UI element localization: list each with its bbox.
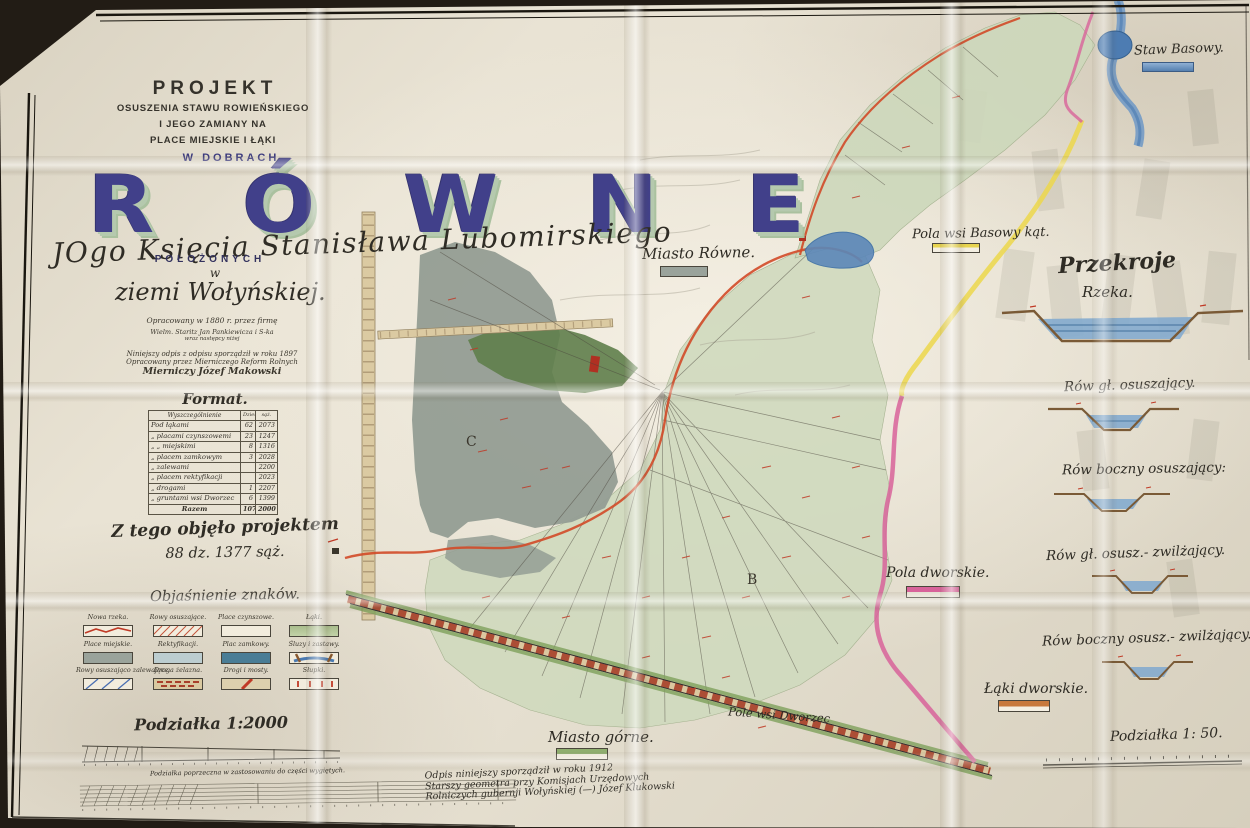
cell-saz: 2200 (256, 463, 278, 473)
cell-saz: 2023 (256, 473, 278, 483)
legend-label: Łąki. (282, 613, 346, 621)
cell-desc: Razem (149, 504, 241, 514)
legend-label: Rektyfikacji. (146, 640, 210, 648)
col-header-dzies: Dzies. (241, 411, 256, 421)
table-row: „ placami czynszowemi231247 (149, 431, 278, 441)
cell-desc: „ drogami (149, 483, 241, 493)
map-sheet-paper: C B PROJEKT OSUSZENIA STAWU ROWIEŃSKIEGO… (0, 0, 1250, 828)
cell-saz: 2000 (256, 504, 278, 514)
table-row: „ zalewami2200 (149, 463, 278, 473)
legend-swatch-slupki (289, 678, 339, 690)
legend-label: Nowa rzeka. (76, 613, 140, 621)
label-miasto-rowne: Miasto Równe. (642, 243, 755, 263)
red-hatch-icon (154, 626, 202, 636)
label-staw-basowy: Staw Basowy. (1134, 40, 1224, 58)
legend-label: Droga żelazna. (146, 666, 210, 674)
mill-mark (328, 539, 339, 554)
cross-section-ditch-side-irrig (1100, 654, 1195, 684)
legend-swatch-laki (289, 625, 339, 637)
legend-swatch-nowa-rzeka (83, 625, 133, 637)
cross-section-rzeka (1000, 303, 1245, 349)
swatch-staw-basowy (1142, 62, 1194, 72)
scale-bar-upper (80, 742, 342, 766)
cell-dzies: 1 (241, 483, 256, 493)
title-kicker: PROJEKT (130, 78, 300, 100)
swatch-miasto-rowne (660, 266, 708, 277)
cell-saz: 1247 (256, 431, 278, 441)
cross-section-ditch-side-drain (1052, 486, 1172, 516)
title-line-4: PLACE MIEJSKIE I ŁĄKI (90, 135, 336, 146)
legend-label: Drogi i mosty. (214, 666, 278, 674)
label-miasto-gorne: Miasto górne. (548, 728, 654, 746)
cell-desc: „ placem zamkowym (149, 452, 241, 462)
label-pola-dworskie: Pola dworskie. (886, 565, 990, 581)
legend-swatch-rowy-zalewajace (83, 678, 133, 690)
legend-swatch-place-miejskie (83, 652, 133, 664)
cell-saz: 2207 (256, 483, 278, 493)
swatch-laki-dworskie (998, 700, 1050, 712)
title-notes: Opracowany w 1880 r. przez firmę Wielm. … (112, 316, 312, 377)
area-summary-table: Wyszczególnienie Dzies. sąż. Pod łąkami6… (148, 410, 278, 515)
title-note: Opracowany w 1880 r. przez firmę (112, 316, 312, 325)
title-line-2: OSUSZENIA STAWU ROWIEŃSKIEGO (90, 103, 336, 114)
legend-swatch-sluzy (289, 652, 339, 664)
title-note: Niniejszy odpis z odpisu sporządził w ro… (112, 350, 312, 358)
project-total-line2: 88 dz. 1377 sąż. (140, 544, 310, 563)
col-header-saz: sąż. (256, 411, 278, 421)
photo-of-historical-map: { "title_block": { "kicker": "PROJEKT", … (0, 0, 1250, 828)
cell-desc: „ placami czynszowemi (149, 431, 241, 441)
railway-brick-icon (154, 679, 202, 689)
cell-desc: Pod łąkami (149, 421, 241, 431)
legend-swatch-droga-zelazna (153, 678, 203, 690)
red-river-line-icon (84, 626, 132, 636)
legend-label: Place miejskie. (76, 640, 140, 648)
swatch-pola-dworskie (906, 586, 960, 598)
cell-dzies: 107 (241, 504, 256, 514)
label-pola-basowy: Pola wsi Basowy kąt. (912, 225, 1050, 242)
cell-saz: 2073 (256, 421, 278, 431)
parcel-letter-b: B (747, 572, 757, 588)
road-causeway-vertical (362, 212, 375, 620)
legend-title: Objaśnienie znaków. (150, 587, 280, 605)
cell-saz: 1316 (256, 442, 278, 452)
table-header-row: Wyszczególnienie Dzies. sąż. (149, 411, 278, 421)
cell-saz: 2028 (256, 452, 278, 462)
cell-dzies (241, 473, 256, 483)
title-note: wraz następcy niżej (112, 336, 312, 342)
title-line-3: I JEGO ZAMIANY NA (90, 119, 336, 130)
paper-ghost-patches (956, 89, 1236, 618)
road-bridge-icon (222, 679, 270, 689)
col-header-desc: Wyszczególnienie (149, 411, 241, 421)
table-row: „ „ miejskimi81316 (149, 442, 278, 452)
sluice-icon (290, 653, 338, 663)
cell-dzies: 62 (241, 421, 256, 431)
legend-swatch-rektyfikacji (153, 652, 203, 664)
table-row: „ gruntami wsi Dworzec61399 (149, 494, 278, 504)
parcel-letter-c: C (466, 434, 477, 450)
cell-desc: „ gruntami wsi Dworzec (149, 494, 241, 504)
located-line: POŁOŻONYCH (130, 254, 290, 265)
cell-dzies: 23 (241, 431, 256, 441)
cell-dzies: 6 (241, 494, 256, 504)
legend-label: Słupki. (282, 666, 346, 674)
boundary-posts-icon (290, 679, 338, 689)
title-note: Wielm. Staritz Jan Pankiewicza i S-ka (112, 328, 312, 336)
cell-dzies (241, 463, 256, 473)
scale-main-title: Podziałka 1:2000 (111, 712, 311, 734)
cell-saz: 1399 (256, 494, 278, 504)
blue-hatch-icon (84, 679, 132, 689)
region-line: ziemi Wołyńskiej. (115, 278, 315, 306)
legend-swatch-place-czynszowe (221, 625, 271, 637)
table-row: „ placem zamkowym32028 (149, 452, 278, 462)
title-note-signature: Mierniczy Józef Makowski (112, 366, 312, 377)
cell-desc: „ „ miejskimi (149, 442, 241, 452)
legend-swatch-plac-zamkowy (221, 652, 271, 664)
area-table-title: Format. (160, 390, 270, 408)
swatch-miasto-gorne (556, 748, 608, 760)
table-row: „ drogami12207 (149, 483, 278, 493)
legend-label: Rowy osuszające. (146, 613, 210, 621)
legend-label: Śluzy i zastawy. (282, 640, 346, 648)
cell-dzies: 3 (241, 452, 256, 462)
label-rzeka: Rzeka. (1082, 283, 1133, 301)
legend-swatch-rowy-osuszajace (153, 625, 203, 637)
cross-section-ditch-main-irrig (1090, 568, 1190, 598)
table-row: „ placem rektyfikacji2023 (149, 473, 278, 483)
table-total-row: Razem1072000 (149, 504, 278, 514)
label-laki-dworskie: Łąki dworskie. (984, 681, 1088, 697)
table-row: Pod łąkami622073 (149, 421, 278, 431)
scale-bar-1-50 (1040, 752, 1245, 772)
cell-desc: „ zalewami (149, 463, 241, 473)
legend-label: Plac zamkowy. (214, 640, 278, 648)
label-ditch-side-drain: Rów boczny osuszający: (1062, 460, 1226, 479)
cell-desc: „ placem rektyfikacji (149, 473, 241, 483)
legend-swatch-drogi-mosty (221, 678, 271, 690)
title-note: Opracowany przez Mierniczego Reform Roln… (112, 358, 312, 366)
cross-section-ditch-main-drain (1046, 400, 1181, 436)
river-top-right (1098, 0, 1140, 146)
swatch-pola-basowy (932, 243, 980, 253)
legend-label: Rowy osuszająco zalewające. (76, 666, 140, 674)
cell-dzies: 8 (241, 442, 256, 452)
legend-label: Place czynszowe. (214, 613, 278, 621)
